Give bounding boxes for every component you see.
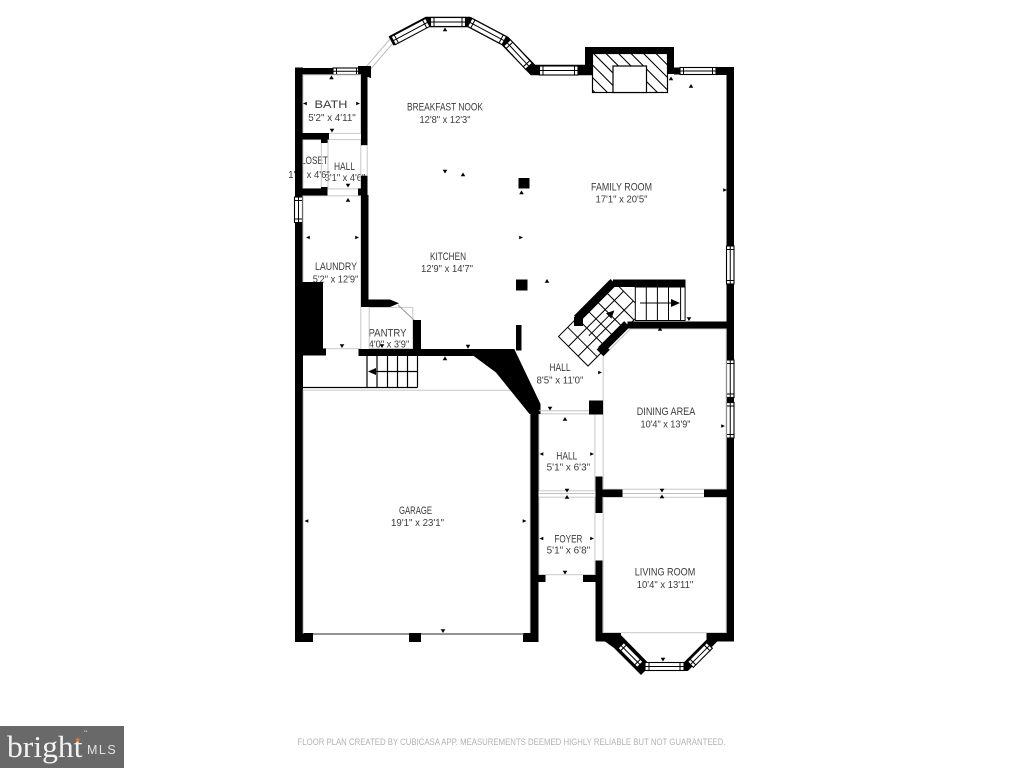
svg-text:KITCHEN: KITCHEN bbox=[430, 251, 466, 263]
svg-text:1'9" x 4'6": 1'9" x 4'6" bbox=[288, 169, 330, 181]
svg-text:12'9" x 14'7": 12'9" x 14'7" bbox=[421, 263, 473, 275]
svg-text:5'2" x 4'11": 5'2" x 4'11" bbox=[308, 112, 356, 124]
svg-text:12'8" x 12'3": 12'8" x 12'3" bbox=[420, 114, 471, 126]
svg-text:“: “ bbox=[84, 729, 88, 738]
svg-text:17'1" x 20'5": 17'1" x 20'5" bbox=[596, 194, 648, 206]
svg-text:HALL: HALL bbox=[550, 362, 571, 374]
svg-text:19'1" x 23'1": 19'1" x 23'1" bbox=[391, 517, 444, 529]
svg-text:3'1" x 4'6": 3'1" x 4'6" bbox=[325, 172, 366, 184]
svg-text:5'1" x 6'8": 5'1" x 6'8" bbox=[547, 545, 591, 557]
svg-text:8'5" x 11'0": 8'5" x 11'0" bbox=[537, 375, 584, 387]
svg-text:LAUNDRY: LAUNDRY bbox=[315, 261, 358, 273]
svg-text:10'4" x 13'11": 10'4" x 13'11" bbox=[637, 579, 694, 591]
svg-text:MLS: MLS bbox=[87, 743, 117, 757]
svg-text:10'4" x 13'9": 10'4" x 13'9" bbox=[641, 419, 691, 431]
svg-text:5'1" x 6'3": 5'1" x 6'3" bbox=[547, 462, 591, 474]
svg-text:BREAKFAST NOOK: BREAKFAST NOOK bbox=[407, 102, 483, 114]
svg-text:FLOOR PLAN CREATED BY CUBICASA: FLOOR PLAN CREATED BY CUBICASA APP. MEAS… bbox=[298, 737, 726, 748]
svg-text:GARAGE: GARAGE bbox=[399, 505, 432, 517]
svg-text:LIVING ROOM: LIVING ROOM bbox=[635, 567, 696, 579]
svg-text:BATH: BATH bbox=[315, 99, 348, 111]
svg-text:bright: bright bbox=[7, 729, 83, 764]
svg-text:DINING AREA: DINING AREA bbox=[637, 406, 696, 418]
svg-text:FAMILY ROOM: FAMILY ROOM bbox=[591, 182, 652, 194]
